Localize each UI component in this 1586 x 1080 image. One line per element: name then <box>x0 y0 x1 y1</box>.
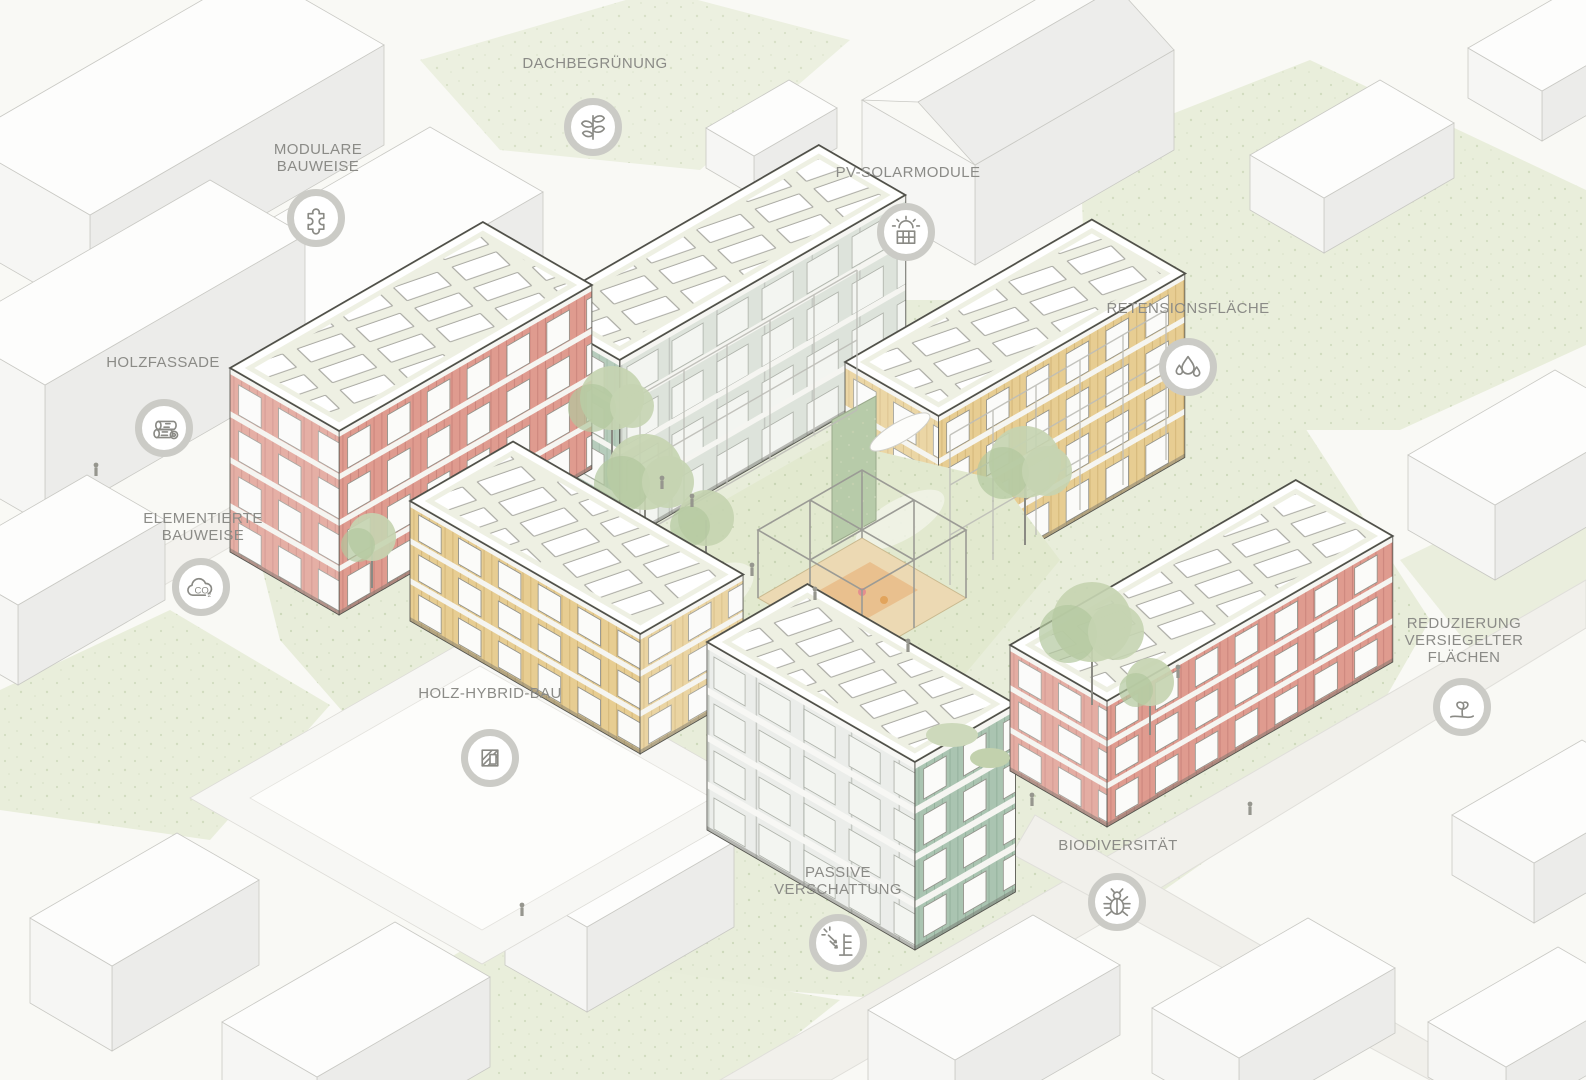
sprout-icon <box>1433 678 1491 736</box>
water-drops-icon <box>1159 338 1217 396</box>
callout-label-dachbegruenung: DACHBEGRÜNUNG <box>522 55 667 72</box>
callout-label-passive-verschattung: PASSIVE VERSCHATTUNG <box>774 864 902 898</box>
wood-hybrid-icon <box>461 729 519 787</box>
callout-label-holzfassade: HOLZFASSADE <box>106 354 220 371</box>
puzzle-icon <box>287 189 345 247</box>
sustainability-site-diagram: DACHBEGRÜNUNG MODULARE BAUWEISE PV-SOLAR… <box>0 0 1586 1080</box>
wood-logs-icon <box>135 399 193 457</box>
co2-cloud-icon: CO2 <box>172 558 230 616</box>
callout-label-biodiversitaet: BIODIVERSITÄT <box>1058 837 1177 854</box>
sun-shading-icon <box>809 914 867 972</box>
callout-label-holz-hybrid-bau: HOLZ-HYBRID-BAU <box>418 685 562 702</box>
callout-label-reduzierung-versiegelter-flaechen: REDUZIERUNG VERSIEGELTER FLÄCHEN <box>1405 615 1524 666</box>
svg-text:2: 2 <box>207 592 211 599</box>
callout-label-elementierte-bauweise: ELEMENTIERTE BAUWEISE <box>143 510 263 544</box>
callout-label-modulare-bauweise: MODULARE BAUWEISE <box>274 141 362 175</box>
beetle-icon <box>1088 873 1146 931</box>
callout-label-pv-solarmodule: PV-SOLARMODULE <box>836 164 981 181</box>
solar-panel-icon <box>877 203 935 261</box>
green-roof-plant-icon <box>564 98 622 156</box>
callout-label-retensionsflaeche: RETENSIONSFLÄCHE <box>1106 300 1269 317</box>
